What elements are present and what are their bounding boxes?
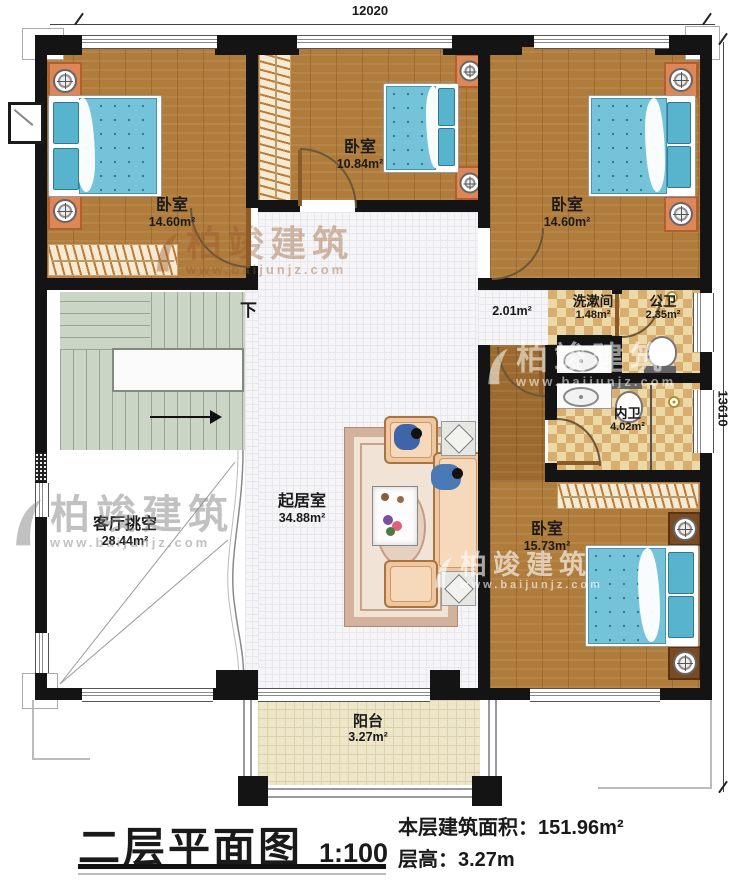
window [534, 35, 669, 49]
bed [585, 545, 699, 647]
lamp-icon [459, 61, 480, 82]
nightstand [668, 512, 701, 546]
pillow [438, 88, 455, 126]
pillow [667, 102, 691, 144]
roof-outline [32, 700, 90, 760]
room-label-balcony: 阳台 3.27m² [308, 714, 428, 745]
window [35, 633, 49, 673]
wall-segment [478, 345, 490, 688]
floor-height-line: 层高：3.27m [398, 844, 624, 876]
window [693, 390, 714, 453]
side-table [441, 571, 476, 606]
cup [381, 493, 389, 501]
toilet [644, 336, 678, 378]
pillow [53, 102, 79, 144]
lamp-icon [669, 68, 693, 92]
wall-segment [35, 278, 258, 290]
railing [243, 788, 497, 790]
door-leaf [246, 208, 251, 266]
wall-segment [258, 200, 300, 212]
room-label-bedroom-top-right: 卧室 14.60m² [507, 198, 627, 230]
wall-segment [700, 35, 712, 700]
stair-direction-line [150, 416, 212, 418]
nightstand [668, 646, 701, 680]
title-underline-thin [78, 873, 386, 875]
room-label-living-room: 起居室 34.88m² [242, 494, 362, 526]
coffee-table [372, 486, 418, 546]
person [394, 424, 420, 450]
pillow [53, 148, 79, 190]
person [431, 464, 461, 490]
wall-pier [430, 670, 460, 700]
wall-segment [478, 278, 712, 290]
pillow [668, 552, 694, 594]
bed [588, 95, 696, 197]
lamp-icon [669, 202, 693, 226]
window [82, 688, 213, 702]
wall-segment [545, 373, 700, 383]
title-underline [78, 864, 386, 869]
toilet-bowl [647, 336, 677, 368]
pillow [667, 146, 691, 188]
door-leaf [539, 347, 543, 395]
room-label-bedroom-top-middle: 卧室 10.84m² [300, 140, 420, 172]
wardrobe [48, 244, 178, 276]
wall-pier [35, 35, 82, 55]
corridor-area-label: 2.01m² [468, 304, 556, 318]
wall-segment [557, 335, 612, 345]
room-label-public-bath: 公卫 2.35m² [624, 295, 702, 322]
nightstand [664, 62, 698, 98]
room-label-private-bath: 内卫 4.02m² [585, 407, 670, 434]
wall-pier [216, 670, 258, 700]
wall-segment [355, 200, 478, 212]
nightstand [664, 196, 698, 232]
stairs-down-label: 下 [240, 296, 257, 321]
wall-segment [246, 47, 258, 208]
window [82, 35, 217, 49]
stairs-upper-flight [60, 292, 150, 350]
side-table [441, 421, 476, 456]
lamp-icon [673, 517, 697, 541]
floor-plan-canvas: 下 [0, 0, 750, 881]
sink-counter [548, 345, 612, 375]
pillar [238, 776, 268, 806]
lamp-icon [673, 651, 697, 675]
window [297, 35, 452, 49]
flowers [386, 527, 395, 536]
void-break-lines [47, 448, 247, 690]
roof-outline [598, 700, 712, 789]
lamp-icon [53, 199, 77, 223]
cup [397, 496, 404, 503]
closet [259, 50, 291, 202]
dimension-top-value: 12020 [310, 3, 430, 18]
railing [243, 796, 497, 798]
pillow [668, 596, 694, 638]
stair-landing [112, 348, 244, 392]
room-label-bedroom-bottom-right: 卧室 15.73m² [487, 522, 607, 554]
sink-counter [548, 383, 612, 409]
bed [48, 95, 162, 197]
floor-area-line: 本层建筑面积：151.96m² [398, 812, 624, 844]
window [35, 483, 49, 517]
sink [563, 350, 599, 372]
lamp-icon [459, 173, 480, 194]
nightstand [48, 192, 82, 230]
lamp-icon [53, 69, 77, 93]
title-info: 本层建筑面积：151.96m² 层高：3.27m [398, 812, 624, 876]
door-leaf [557, 461, 599, 465]
sliding-door [258, 688, 430, 702]
armchair [384, 560, 438, 608]
pillow [438, 128, 455, 166]
room-label-bedroom-top-left: 卧室 14.60m² [112, 198, 232, 230]
column [35, 453, 47, 481]
sink [563, 387, 599, 407]
dimension-line-top [50, 24, 715, 25]
window [530, 688, 660, 702]
stair-arrow-icon [210, 410, 222, 424]
wall-segment [545, 470, 712, 482]
wardrobe [557, 483, 699, 509]
wall-segment [478, 47, 490, 228]
room-label-void: 客厅挑空 28.44m² [65, 517, 185, 549]
flue-box [8, 102, 44, 144]
pillar [472, 776, 502, 806]
